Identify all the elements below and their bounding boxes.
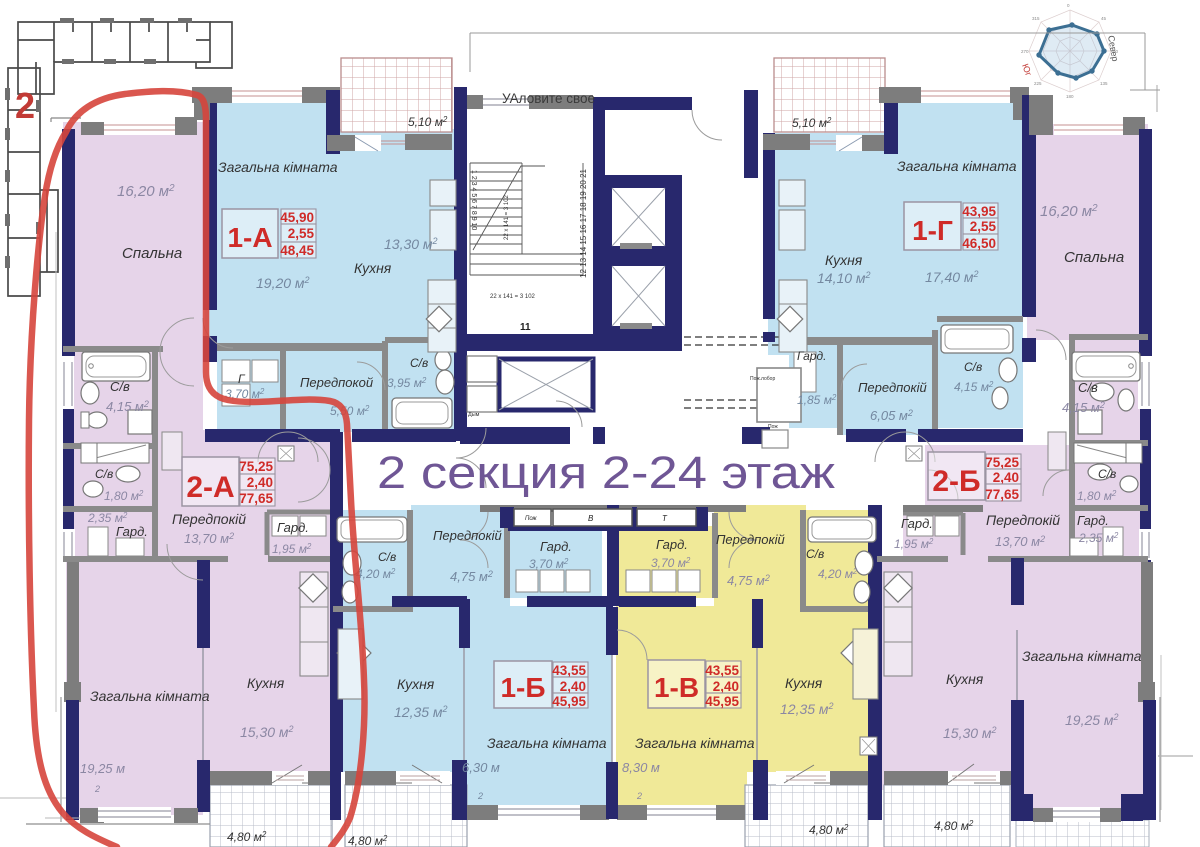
- svg-text:С/в: С/в: [410, 356, 428, 370]
- svg-text:Спальна: Спальна: [1064, 249, 1124, 266]
- svg-text:2,55: 2,55: [288, 226, 315, 241]
- svg-text:Пож: Пож: [768, 424, 778, 430]
- svg-text:4,80 м2: 4,80 м2: [348, 834, 388, 847]
- svg-text:2,35 м2: 2,35 м2: [87, 511, 128, 525]
- svg-text:2,40: 2,40: [993, 470, 1019, 485]
- svg-text:6,05 м2: 6,05 м2: [870, 408, 913, 423]
- svg-text:3,70 м2: 3,70 м2: [529, 557, 569, 571]
- svg-text:Спальна: Спальна: [122, 245, 182, 262]
- svg-text:Гард.: Гард.: [901, 516, 933, 531]
- svg-text:Передпокой: Передпокой: [300, 375, 373, 390]
- svg-text:135: 135: [1100, 81, 1108, 86]
- svg-text:С/в: С/в: [110, 379, 130, 394]
- svg-text:С/в: С/в: [1078, 380, 1098, 395]
- svg-text:Кухня: Кухня: [354, 260, 392, 276]
- svg-text:4,20 м2: 4,20 м2: [356, 567, 396, 581]
- svg-text:В: В: [588, 514, 594, 523]
- svg-text:75,25: 75,25: [985, 455, 1019, 470]
- svg-text:Загальна кімната: Загальна кімната: [218, 159, 338, 175]
- svg-text:2 секция 2-24 этаж: 2 секция 2-24 этаж: [377, 447, 835, 498]
- svg-text:48,45: 48,45: [280, 243, 314, 258]
- svg-text:45,90: 45,90: [280, 210, 314, 225]
- svg-text:19,25 м2: 19,25 м2: [1065, 712, 1119, 728]
- svg-text:Гард.: Гард.: [540, 539, 572, 554]
- svg-text:43,55: 43,55: [552, 663, 586, 678]
- svg-text:Гард.: Гард.: [277, 520, 309, 535]
- svg-text:Передпокій: Передпокій: [986, 512, 1060, 528]
- svg-text:2,35 м2: 2,35 м2: [1078, 531, 1119, 545]
- svg-text:2: 2: [94, 784, 100, 794]
- svg-text:1-А: 1-А: [227, 222, 272, 253]
- svg-text:С/в: С/в: [1098, 467, 1116, 481]
- svg-text:С/в: С/в: [95, 467, 113, 481]
- svg-text:1,80 м2: 1,80 м2: [104, 489, 144, 503]
- svg-text:Передпокій: Передпокій: [433, 528, 502, 543]
- svg-text:43,95: 43,95: [962, 204, 996, 219]
- svg-text:2,55: 2,55: [970, 219, 997, 234]
- svg-text:15,30 м2: 15,30 м2: [240, 724, 294, 740]
- svg-text:Пож.лобор: Пож.лобор: [750, 376, 775, 382]
- svg-text:2: 2: [477, 791, 483, 801]
- svg-text:4,80 м2: 4,80 м2: [934, 819, 974, 833]
- svg-text:Гард.: Гард.: [116, 524, 148, 539]
- svg-text:Кухня: Кухня: [946, 671, 984, 687]
- svg-text:17,40 м2: 17,40 м2: [925, 269, 979, 285]
- svg-text:Кухня: Кухня: [397, 676, 435, 692]
- svg-text:225: 225: [1034, 81, 1042, 86]
- svg-text:1,80 м2: 1,80 м2: [1077, 489, 1117, 503]
- svg-text:4,15 м2: 4,15 м2: [1062, 400, 1105, 415]
- svg-text:5,10 м2: 5,10 м2: [792, 116, 832, 130]
- svg-text:13,70 м2: 13,70 м2: [184, 531, 234, 546]
- svg-text:13,30 м2: 13,30 м2: [384, 236, 438, 252]
- svg-text:22 x 141 = 3 102: 22 x 141 = 3 102: [504, 194, 510, 240]
- svg-text:12,35 м2: 12,35 м2: [394, 704, 448, 720]
- svg-text:22 x 141 = 3 102: 22 x 141 = 3 102: [490, 294, 536, 300]
- svg-text:2,40: 2,40: [713, 679, 739, 694]
- svg-text:45: 45: [1101, 16, 1107, 21]
- svg-text:Загальна кімната: Загальна кімната: [1022, 648, 1142, 664]
- svg-text:1-В: 1-В: [654, 672, 699, 703]
- svg-text:4,75 м2: 4,75 м2: [727, 573, 770, 588]
- svg-text:Передпокій: Передпокій: [172, 511, 246, 527]
- svg-text:16,20 м2: 16,20 м2: [1040, 203, 1098, 220]
- svg-text:4,20 м2: 4,20 м2: [818, 567, 858, 581]
- svg-text:46,50: 46,50: [962, 236, 996, 251]
- svg-text:3,95 м2: 3,95 м2: [387, 376, 427, 390]
- svg-text:6,30 м: 6,30 м: [462, 760, 500, 775]
- svg-text:45,95: 45,95: [705, 694, 739, 709]
- svg-text:4,15 м2: 4,15 м2: [106, 399, 149, 414]
- svg-text:Кухня: Кухня: [825, 252, 863, 268]
- svg-text:3,70 м2: 3,70 м2: [651, 556, 691, 570]
- svg-text:Загальна кімната: Загальна кімната: [897, 158, 1017, 174]
- svg-text:12,35 м2: 12,35 м2: [780, 701, 834, 717]
- svg-text:1,85 м2: 1,85 м2: [797, 393, 837, 407]
- svg-text:270: 270: [1021, 49, 1029, 54]
- svg-text:2: 2: [636, 791, 642, 801]
- svg-text:2-А: 2-А: [186, 471, 234, 504]
- svg-text:4,80 м2: 4,80 м2: [809, 823, 849, 837]
- svg-text:5,10 м2: 5,10 м2: [408, 115, 448, 129]
- svg-text:4,15 м2: 4,15 м2: [954, 380, 994, 394]
- svg-text:Кухня: Кухня: [247, 675, 285, 691]
- svg-text:2,40: 2,40: [247, 475, 273, 490]
- svg-text:19,25 м: 19,25 м: [80, 761, 125, 776]
- svg-text:Гард.: Гард.: [656, 537, 688, 552]
- svg-text:1-Г: 1-Г: [912, 215, 953, 246]
- svg-text:Гард.: Гард.: [797, 349, 826, 363]
- svg-text:1,95 м2: 1,95 м2: [894, 537, 934, 551]
- svg-text:Кухня: Кухня: [785, 675, 823, 691]
- svg-text:14,10 м2: 14,10 м2: [817, 270, 871, 286]
- svg-text:4,75 м2: 4,75 м2: [450, 569, 493, 584]
- svg-text:2,40: 2,40: [560, 679, 586, 694]
- svg-text:2: 2: [15, 85, 35, 126]
- svg-text:С/в: С/в: [964, 360, 982, 374]
- svg-text:77,65: 77,65: [239, 491, 273, 506]
- svg-text:Передпокій: Передпокій: [716, 532, 785, 547]
- svg-text:8,30 м: 8,30 м: [622, 760, 660, 775]
- svg-text:43,55: 43,55: [705, 663, 739, 678]
- svg-text:45,95: 45,95: [552, 694, 586, 709]
- svg-text:2-Б: 2-Б: [932, 465, 980, 498]
- svg-text:Гард.: Гард.: [1077, 513, 1109, 528]
- svg-text:1,95 м2: 1,95 м2: [272, 542, 312, 556]
- svg-text:1-Б: 1-Б: [500, 672, 545, 703]
- svg-text:1 2 3 4 5 6 7 8 9 10: 1 2 3 4 5 6 7 8 9 10: [470, 170, 477, 230]
- svg-text:90: 90: [1113, 49, 1119, 54]
- svg-text:4,80 м2: 4,80 м2: [227, 830, 267, 844]
- svg-text:Пож: Пож: [525, 516, 538, 522]
- svg-text:Загальна кімната: Загальна кімната: [90, 688, 210, 704]
- svg-text:75,25: 75,25: [239, 459, 273, 474]
- svg-text:315: 315: [1032, 16, 1040, 21]
- svg-text:С/в: С/в: [806, 547, 824, 561]
- svg-text:15,30 м2: 15,30 м2: [943, 725, 997, 741]
- svg-text:Загальна кімната: Загальна кімната: [487, 735, 607, 751]
- svg-text:11: 11: [520, 322, 531, 333]
- svg-text:180: 180: [1066, 94, 1074, 99]
- svg-text:12 13 14 15 16 17 18 19 20 21: 12 13 14 15 16 17 18 19 20 21: [579, 168, 588, 278]
- svg-text:77,65: 77,65: [985, 487, 1019, 502]
- svg-text:С/в: С/в: [378, 550, 396, 564]
- svg-text:16,20 м2: 16,20 м2: [117, 183, 175, 200]
- svg-text:Дым: Дым: [468, 412, 480, 418]
- svg-text:13,70 м2: 13,70 м2: [995, 534, 1045, 549]
- svg-text:Передпокій: Передпокій: [858, 380, 927, 395]
- svg-text:Загальна кімната: Загальна кімната: [635, 735, 755, 751]
- svg-text:19,20 м2: 19,20 м2: [256, 275, 310, 291]
- svg-text:УАловите свое: УАловите свое: [502, 91, 595, 106]
